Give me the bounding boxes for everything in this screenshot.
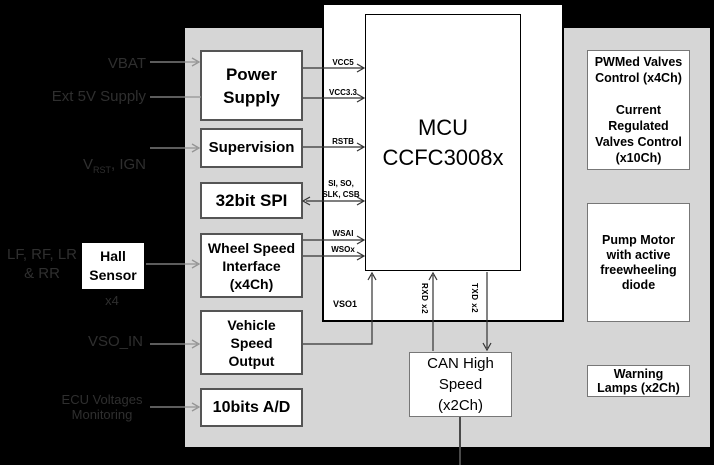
supervision-label: Supervision bbox=[209, 139, 295, 158]
vehicle-speed-label: Vehicle Speed Output bbox=[227, 316, 275, 370]
can-box: CAN High Speed (x2Ch) bbox=[409, 352, 512, 417]
spi-bus-signal-label: SI, SO, SLK, CSB bbox=[318, 178, 364, 200]
mcu-box: MCU CCFC3008x bbox=[365, 14, 521, 271]
power-supply-label: Power Supply bbox=[223, 63, 280, 109]
vcc33-signal-label: VCC3.3 bbox=[320, 87, 366, 98]
txd-signal-label: TXD x2 bbox=[470, 283, 479, 325]
wsai-signal-label: WSAI bbox=[322, 228, 364, 239]
ext5v-label: Ext 5V Supply bbox=[24, 88, 146, 105]
pump-motor-label: Pump Motor with active freewheeling diod… bbox=[600, 233, 676, 293]
spi-label: 32bit SPI bbox=[216, 190, 288, 211]
warning-lamps-box: Warning Lamps (x2Ch) bbox=[587, 365, 690, 397]
adc-box: 10bits A/D bbox=[200, 388, 303, 427]
vso1-signal-label: VSO1 bbox=[324, 299, 366, 310]
vehicle-speed-box: Vehicle Speed Output bbox=[200, 310, 303, 375]
warning-lamps-label: Warning Lamps (x2Ch) bbox=[597, 367, 680, 395]
vrst-sub: RST bbox=[93, 165, 111, 175]
wsox-signal-label: WSOx bbox=[322, 244, 364, 255]
vbat-label: VBAT bbox=[60, 55, 146, 72]
supervision-box: Supervision bbox=[200, 128, 303, 168]
vrst-ign-label: VRST, IGN bbox=[50, 139, 146, 175]
valves-label: PWMed Valves Control (x4Ch) Current Regu… bbox=[595, 54, 683, 166]
vcc5-signal-label: VCC5 bbox=[322, 57, 364, 68]
hall-sensor-label: Hall Sensor bbox=[89, 247, 136, 285]
spi-box: 32bit SPI bbox=[200, 182, 303, 219]
pump-motor-box: Pump Motor with active freewheeling diod… bbox=[587, 203, 690, 322]
can-label: CAN High Speed (x2Ch) bbox=[427, 353, 494, 416]
block-diagram: MCU CCFC3008x Power Supply Supervision 3… bbox=[0, 0, 714, 465]
vso-in-label: VSO_IN bbox=[57, 333, 143, 350]
hall-count-label: x4 bbox=[98, 293, 126, 308]
adc-label: 10bits A/D bbox=[213, 398, 291, 418]
wheel-speed-label: Wheel Speed Interface (x4Ch) bbox=[208, 239, 295, 293]
vrst-v: V bbox=[83, 156, 93, 173]
wheel-speed-box: Wheel Speed Interface (x4Ch) bbox=[200, 233, 303, 298]
valves-box: PWMed Valves Control (x4Ch) Current Regu… bbox=[587, 50, 690, 170]
ecu-monitoring-label: ECU Voltages Monitoring bbox=[56, 392, 148, 422]
hall-sensor-box: Hall Sensor bbox=[80, 241, 146, 291]
rstb-signal-label: RSTB bbox=[322, 136, 364, 147]
wheel-inputs-label: LF, RF, LR & RR bbox=[6, 245, 78, 283]
mcu-label: MCU CCFC3008x bbox=[382, 113, 503, 173]
power-supply-box: Power Supply bbox=[200, 50, 303, 121]
vrst-rest: , IGN bbox=[111, 156, 146, 173]
rxd-signal-label: RXD x2 bbox=[420, 283, 429, 325]
